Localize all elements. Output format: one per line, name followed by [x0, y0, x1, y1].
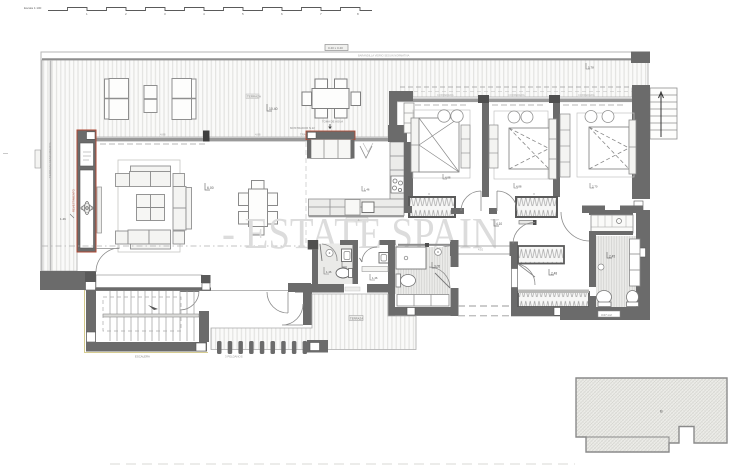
svg-text:V: V: [533, 192, 535, 196]
svg-text:2.48: 2.48: [551, 272, 557, 276]
svg-text:TERRAZA DESCUBIERTA: TERRAZA DESCUBIERTA: [48, 142, 52, 178]
svg-text:3 PELDANOS: 3 PELDANOS: [225, 355, 243, 359]
svg-text:REVESTIMIENTO: REVESTIMIENTO: [72, 188, 76, 212]
svg-text:CORREDERA: CORREDERA: [578, 93, 595, 97]
svg-text:Escala 1:100: Escala 1:100: [24, 6, 42, 10]
svg-text:1.46: 1.46: [372, 276, 378, 280]
svg-text:4.88: 4.88: [160, 133, 166, 137]
svg-text:1.46: 1.46: [326, 270, 332, 274]
svg-text:CORREDERA: CORREDERA: [508, 93, 525, 97]
svg-text:4.88: 4.88: [516, 185, 522, 189]
svg-text:BARANDILLA VIDRIO SEGUN NORMAT: BARANDILLA VIDRIO SEGUN NORMATIVA: [358, 54, 410, 58]
svg-text:6.00: 6.00: [207, 186, 214, 190]
svg-text:MOSTRADOR N.22: MOSTRADOR N.22: [290, 126, 315, 130]
svg-text:1.46: 1.46: [60, 217, 66, 221]
svg-text:ESCALERA: ESCALERA: [135, 355, 150, 359]
svg-text:4.88: 4.88: [445, 176, 451, 180]
svg-text:4.88: 4.88: [255, 133, 261, 137]
svg-text:4.10: 4.10: [496, 222, 502, 226]
svg-text:5.78: 5.78: [588, 66, 594, 70]
svg-text:CORREDERA: CORREDERA: [437, 93, 454, 97]
svg-text:2.45: 2.45: [609, 255, 615, 259]
svg-text:V: V: [428, 192, 430, 196]
svg-text:TERRAZA: TERRAZA: [247, 95, 261, 99]
svg-text:B: B: [660, 409, 663, 414]
svg-text:2.70: 2.70: [592, 185, 598, 189]
svg-text:0.40 x 0.40: 0.40 x 0.40: [328, 46, 343, 50]
svg-text:4.10: 4.10: [478, 248, 484, 252]
svg-text:3.07 m2: 3.07 m2: [601, 313, 612, 317]
svg-text:1.46: 1.46: [364, 188, 370, 192]
svg-text:TOMA DE AGUA: TOMA DE AGUA: [322, 120, 343, 124]
svg-text:10.40: 10.40: [269, 107, 278, 111]
svg-text:TERRAZA: TERRAZA: [350, 317, 363, 321]
